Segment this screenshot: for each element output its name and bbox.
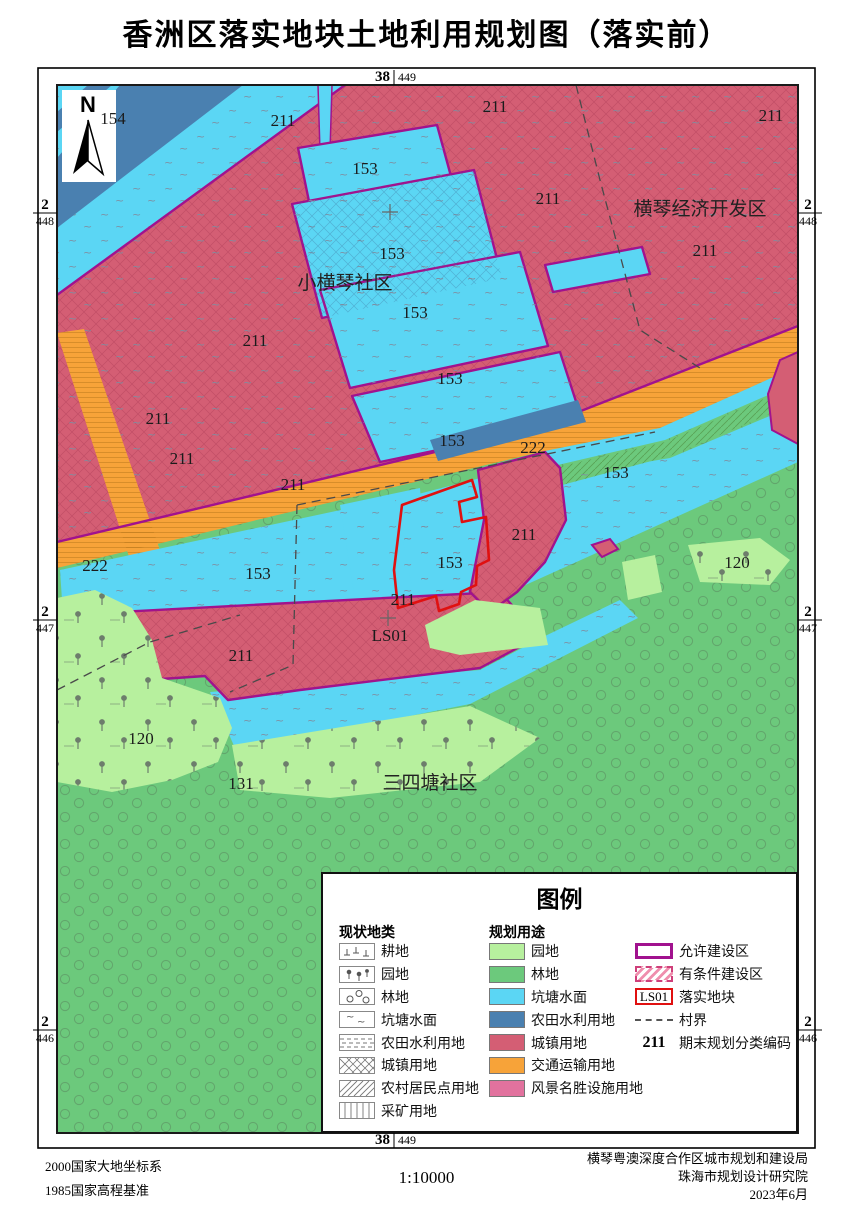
forest-land-icon bbox=[339, 988, 375, 1005]
legend-item: 允许建设区 bbox=[635, 940, 791, 963]
map-label: 211 bbox=[229, 646, 254, 665]
allowed-zone-icon bbox=[635, 943, 673, 959]
map-label: 153 bbox=[603, 463, 629, 482]
scenic-swatch bbox=[489, 1080, 525, 1097]
svg-text:447: 447 bbox=[799, 621, 817, 635]
map-label: 小横琴社区 bbox=[297, 272, 392, 294]
legend-item: 耕地 bbox=[339, 940, 479, 963]
map-label: LS01 bbox=[372, 626, 409, 645]
agency-notes: 横琴粤澳深度合作区城市规划和建设局 珠海市规划设计研究院 2023年6月 bbox=[587, 1150, 808, 1204]
svg-text:446: 446 bbox=[36, 1031, 54, 1045]
map-label: 153 bbox=[437, 369, 463, 388]
legend-current-header: 现状地类 bbox=[339, 922, 479, 940]
svg-text:38: 38 bbox=[375, 69, 390, 85]
map-label: 211 bbox=[759, 106, 784, 125]
pond-water-icon: ~~ bbox=[339, 1011, 375, 1028]
svg-text:449: 449 bbox=[398, 70, 416, 84]
svg-text:2: 2 bbox=[804, 197, 812, 213]
north-arrow: N bbox=[62, 90, 116, 182]
legend-item: 农田水利用地 bbox=[339, 1031, 479, 1054]
svg-text:447: 447 bbox=[36, 621, 54, 635]
map-label: 131 bbox=[228, 774, 254, 793]
pond-swatch bbox=[489, 988, 525, 1005]
map-label: 211 bbox=[271, 111, 296, 130]
legend-item: 村界 bbox=[635, 1008, 791, 1031]
legend-item: 211 期末规划分类编码 bbox=[635, 1031, 791, 1054]
orchard-swatch bbox=[489, 943, 525, 960]
legend-item: 城镇用地 bbox=[339, 1054, 479, 1077]
svg-text:~: ~ bbox=[346, 1012, 354, 1023]
legend-item: 采矿用地 bbox=[339, 1100, 479, 1123]
map-label: 153 bbox=[352, 159, 378, 178]
map-label: 153 bbox=[437, 553, 463, 572]
conditional-zone-icon bbox=[635, 966, 673, 982]
map-label: 211 bbox=[483, 97, 508, 116]
legend-title: 图例 bbox=[323, 880, 796, 914]
map-label: 211 bbox=[243, 331, 268, 350]
legend-item: 坑塘水面 bbox=[489, 986, 643, 1009]
orchard-land-icon bbox=[339, 966, 375, 983]
map-label: 154 bbox=[100, 109, 126, 128]
svg-text:2: 2 bbox=[804, 1014, 812, 1030]
forest-swatch bbox=[489, 966, 525, 983]
legend-item: 林地 bbox=[489, 963, 643, 986]
svg-text:2: 2 bbox=[41, 1014, 49, 1030]
urban-swatch bbox=[489, 1034, 525, 1051]
transport-swatch bbox=[489, 1057, 525, 1074]
svg-text:448: 448 bbox=[36, 214, 54, 228]
legend-item: 交通运输用地 bbox=[489, 1054, 643, 1077]
map-label: 153 bbox=[439, 431, 465, 450]
legend-item: LS01 落实地块 bbox=[635, 986, 791, 1009]
map-label: 222 bbox=[520, 438, 546, 457]
map-label: 211 bbox=[281, 475, 306, 494]
legend-planned-column: 规划用途 园地 林地 坑塘水面 农田水利用地 城镇用地 交通运输用地 bbox=[489, 922, 643, 1100]
svg-text:446: 446 bbox=[799, 1031, 817, 1045]
map-label: 211 bbox=[512, 525, 537, 544]
legend-planned-header: 规划用途 bbox=[489, 922, 643, 940]
svg-text:448: 448 bbox=[799, 214, 817, 228]
legend-item: 园地 bbox=[489, 940, 643, 963]
svg-text:2: 2 bbox=[804, 604, 812, 620]
map-label: 120 bbox=[724, 553, 750, 572]
legend-item: 林地 bbox=[339, 986, 479, 1009]
farm-water-swatch bbox=[489, 1011, 525, 1028]
legend-item: 农田水利用地 bbox=[489, 1008, 643, 1031]
map-date: 2023年6月 bbox=[587, 1186, 808, 1204]
legend: 图例 现状地类 耕地 园地 林地 ~~ 坑塘水面 bbox=[321, 872, 798, 1133]
map-label: 153 bbox=[379, 244, 405, 263]
plan-sheet: 香洲区落实地块土地利用规划图（落实前） ~ ~ bbox=[0, 0, 853, 1211]
code-sample: 211 bbox=[635, 1034, 673, 1052]
svg-text:~: ~ bbox=[357, 1017, 365, 1027]
legend-item: 城镇用地 bbox=[489, 1031, 643, 1054]
rural-residential-icon bbox=[339, 1080, 375, 1097]
legend-item: 园地 bbox=[339, 963, 479, 986]
svg-text:38: 38 bbox=[375, 1132, 390, 1148]
plot-code-icon: LS01 bbox=[635, 988, 673, 1005]
village-boundary-icon bbox=[635, 1019, 673, 1021]
legend-boundary-column: 允许建设区 有条件建设区 LS01 落实地块 村界 211 期末规划分类编码 bbox=[635, 922, 791, 1054]
map-label: 153 bbox=[402, 303, 428, 322]
svg-text:2: 2 bbox=[41, 197, 49, 213]
svg-text:2: 2 bbox=[41, 604, 49, 620]
town-land-icon bbox=[339, 1057, 375, 1074]
map-label: 211 bbox=[536, 189, 561, 208]
agency-line2: 珠海市规划设计研究院 bbox=[587, 1168, 808, 1186]
legend-current-column: 现状地类 耕地 园地 林地 ~~ 坑塘水面 农田水利 bbox=[339, 922, 479, 1122]
map-label: 三四塘社区 bbox=[382, 772, 477, 794]
map-label: 横琴经济开发区 bbox=[633, 198, 766, 220]
agency-line1: 横琴粤澳深度合作区城市规划和建设局 bbox=[587, 1150, 808, 1168]
mining-land-icon bbox=[339, 1102, 375, 1119]
map-label: 222 bbox=[82, 556, 108, 575]
map-label: 153 bbox=[245, 564, 271, 583]
farm-water-icon bbox=[339, 1034, 375, 1051]
svg-text:N: N bbox=[80, 92, 96, 117]
map-label: 211 bbox=[391, 590, 416, 609]
map-label: 120 bbox=[128, 729, 154, 748]
map-label: 211 bbox=[146, 409, 171, 428]
legend-item: 风景名胜设施用地 bbox=[489, 1077, 643, 1100]
map-label: 211 bbox=[170, 449, 195, 468]
map-label: 211 bbox=[693, 241, 718, 260]
legend-item: ~~ 坑塘水面 bbox=[339, 1008, 479, 1031]
svg-text:449: 449 bbox=[398, 1133, 416, 1147]
legend-item: 农村居民点用地 bbox=[339, 1077, 479, 1100]
cultivated-land-icon bbox=[339, 943, 375, 960]
legend-item: 有条件建设区 bbox=[635, 963, 791, 986]
